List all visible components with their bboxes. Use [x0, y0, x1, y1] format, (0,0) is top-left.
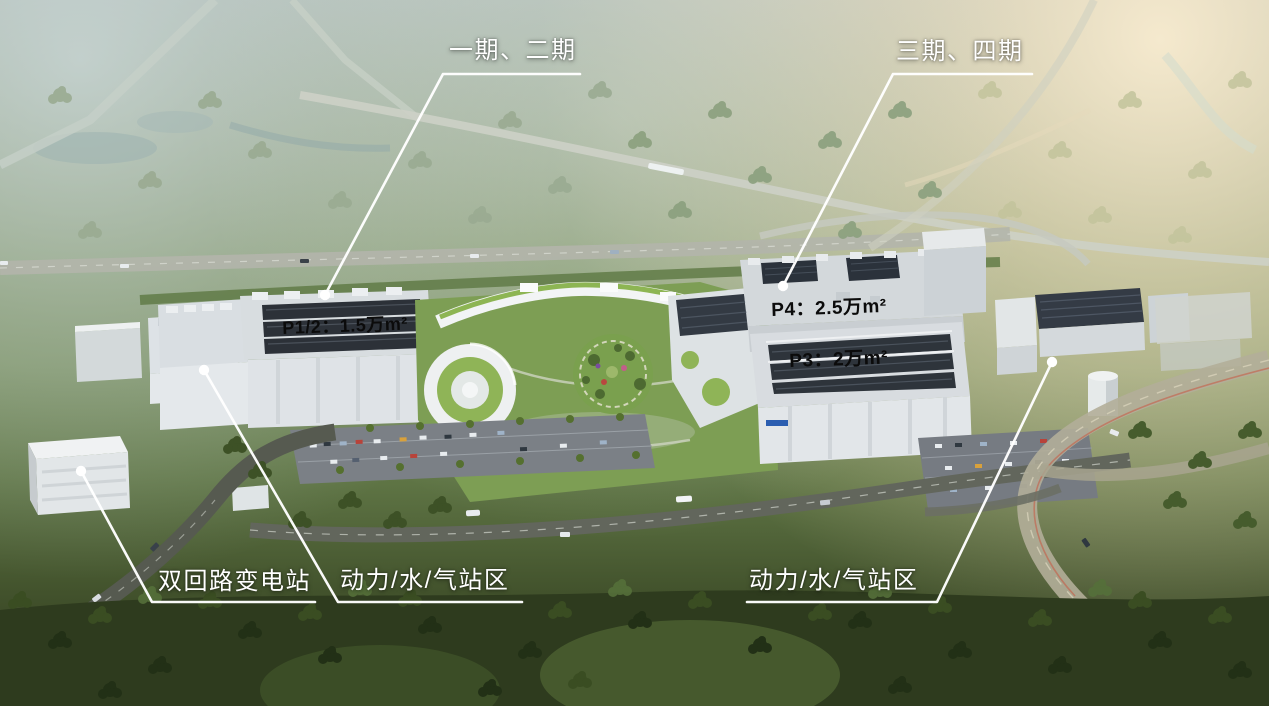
- scene-artwork: [0, 0, 1269, 706]
- substation-building: [28, 436, 130, 515]
- building-logo: [766, 420, 788, 426]
- campus-aerial-rendering: 一期、二期 三期、四期 P1/2：1.5万m² P4：2.5万m² P3：2万m…: [0, 0, 1269, 706]
- fab-p12-building: [158, 287, 452, 430]
